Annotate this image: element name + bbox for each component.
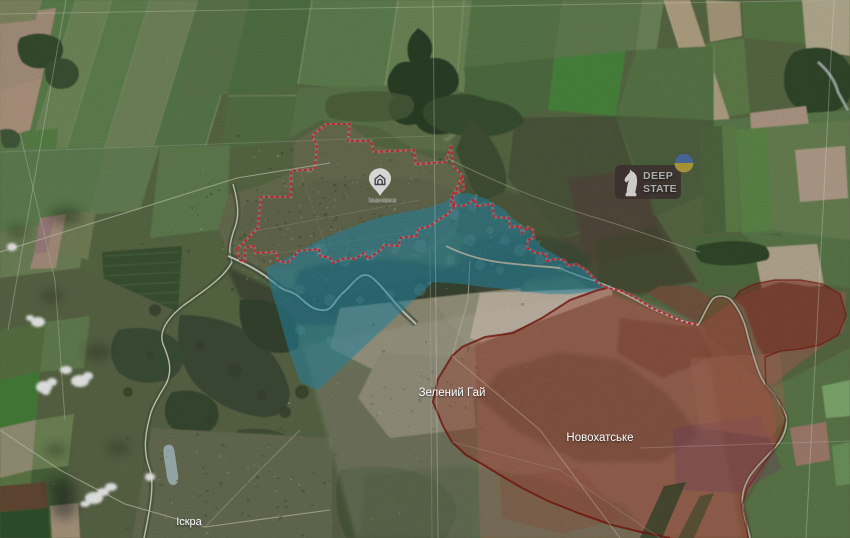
- svg-text:Зелений Гай: Зелений Гай: [419, 387, 486, 399]
- svg-text:Новохатське: Новохатське: [566, 432, 633, 444]
- svg-text:Іванівка: Іванівка: [369, 196, 398, 205]
- svg-text:Іскра: Іскра: [176, 516, 202, 528]
